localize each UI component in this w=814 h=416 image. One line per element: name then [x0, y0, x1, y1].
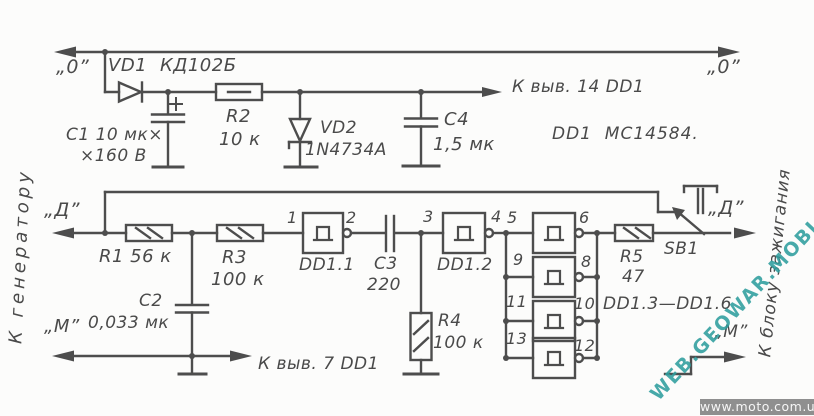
pin-9: 9	[513, 252, 524, 268]
pin-6: 6	[579, 210, 590, 226]
dd1-1-label: DD1.1	[299, 257, 355, 274]
r5-name: R5	[620, 249, 644, 266]
r1-label: R1 56 к	[99, 248, 172, 266]
arrow-to-pin7	[230, 351, 252, 362]
terminal-o-right: „0”	[707, 58, 740, 77]
sb1-label: SB1	[664, 241, 699, 258]
terminal-d-right: „Д”	[708, 199, 744, 218]
terminal-d-left: „Д”	[44, 201, 80, 220]
note-to-pin7: К выв. 7 DD1	[258, 356, 379, 373]
vd1-type: КД102Б	[160, 57, 237, 75]
c3-value: 220	[367, 277, 401, 294]
diode-vd1	[105, 83, 142, 102]
r4-value: 100 к	[433, 335, 484, 352]
arrow-d-left	[52, 228, 74, 239]
feedback-bus-wire	[105, 192, 676, 233]
arrow-d-right	[734, 228, 756, 239]
r2-name: R2	[226, 108, 251, 126]
pin-5: 5	[507, 210, 518, 226]
pin-12: 12	[574, 338, 595, 354]
pin-2: 2	[346, 210, 357, 226]
pin-8: 8	[581, 254, 592, 270]
c3-name: C3	[374, 256, 398, 273]
c1-label-line2: ×160 В	[80, 148, 147, 165]
resistor-r2	[142, 84, 484, 100]
terminal-o-left: „0”	[56, 58, 89, 77]
c2-value: 0,033 мк	[88, 315, 169, 332]
pin-1: 1	[287, 210, 298, 226]
switch-contact-arrow	[672, 207, 685, 220]
capacitor-c3	[386, 216, 443, 251]
r3-value: 100 к	[211, 271, 264, 289]
r5-value: 47	[622, 269, 645, 286]
pin-10: 10	[574, 296, 595, 312]
vd2-type: 1N4734A	[305, 142, 387, 159]
r3-name: R3	[222, 249, 247, 267]
inverter-dd1-1	[303, 213, 385, 253]
note-to-pin14: К выв. 14 DD1	[512, 79, 644, 96]
r4-name: R4	[438, 313, 462, 330]
c4-name: C4	[444, 111, 469, 129]
c1-label-line1: C1 10 мк×	[66, 127, 163, 144]
arrow-m-right	[724, 352, 746, 363]
schematic-canvas: „0” „0” „Д” „Д” „М” „М” VD1 КД102Б C1 10…	[0, 0, 814, 416]
vd2-name: VD2	[320, 120, 357, 137]
pin-11: 11	[506, 294, 527, 310]
vd1-name: VD1	[108, 57, 147, 75]
dd1-3-6-label: DD1.3—DD1.6	[603, 296, 732, 313]
dd1-2-label: DD1.2	[437, 257, 493, 274]
r2-value: 10 к	[219, 131, 261, 149]
c4-value: 1,5 мк	[433, 136, 495, 154]
pin-3: 3	[423, 209, 434, 225]
arrow-m-left	[52, 351, 74, 362]
terminal-m-left: „М”	[44, 318, 80, 336]
resistor-r1	[74, 225, 172, 241]
note-ic: DD1 MC14584.	[552, 126, 699, 143]
site-url-bar: www.moto.com.ua	[700, 399, 814, 415]
pin-4: 4	[491, 209, 502, 225]
pin-13: 13	[506, 331, 527, 347]
c2-name: C2	[139, 293, 163, 310]
arrow-to-pin14	[482, 87, 502, 97]
